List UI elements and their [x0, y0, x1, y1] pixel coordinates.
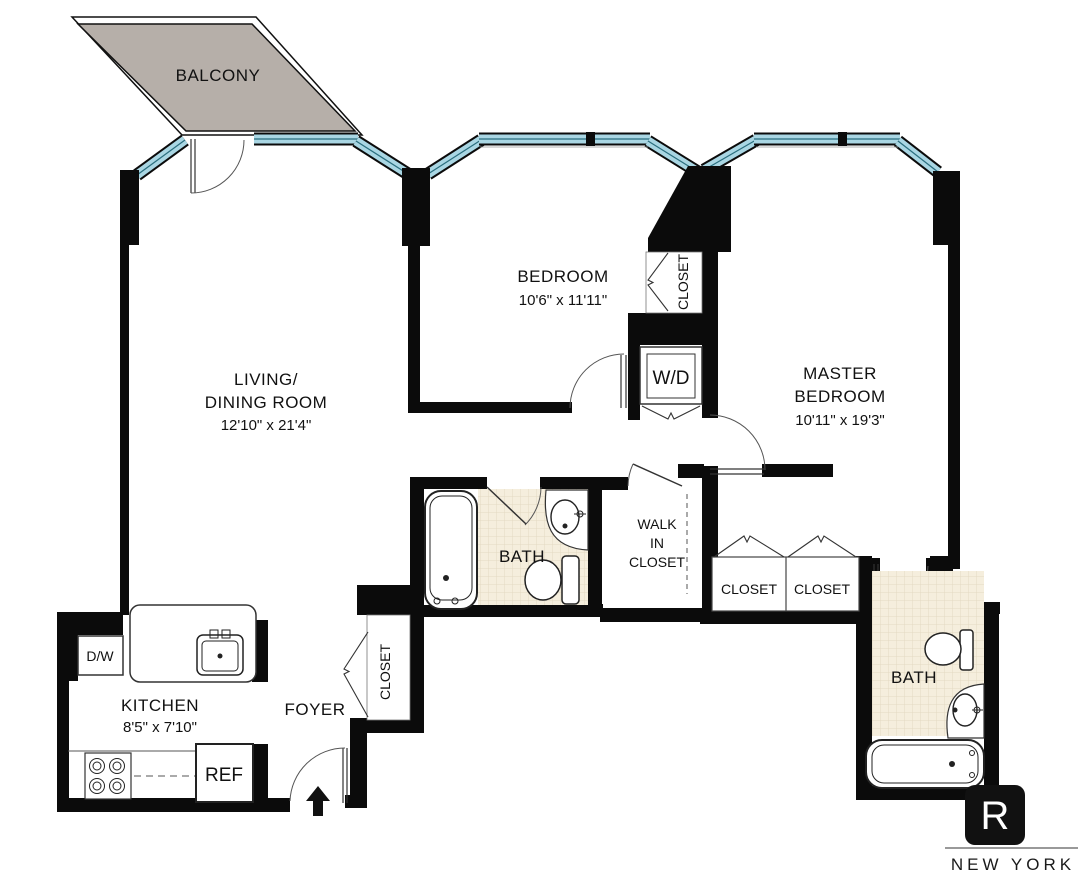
- master-name-line2: BEDROOM: [794, 387, 885, 406]
- master-closet-left-label: CLOSET: [721, 581, 777, 597]
- bedroom-name: BEDROOM: [517, 267, 608, 286]
- master-dimensions: 10'11" x 19'3": [795, 412, 885, 429]
- entry-arrow-icon: [306, 786, 330, 816]
- walk-in-line1: WALK: [637, 516, 677, 532]
- walk-in-closet: WALK IN CLOSET: [628, 464, 687, 594]
- foyer-closet: CLOSET: [344, 615, 410, 720]
- master-name-line1: MASTER: [803, 364, 877, 383]
- bathtub-icon: [425, 491, 477, 609]
- bathtub-icon: [866, 740, 984, 788]
- floor-plan-page: BALCONY: [0, 0, 1087, 880]
- living-dimensions: 12'10" x 21'4": [221, 417, 312, 434]
- kitchen-counter: [130, 605, 256, 682]
- kitchen-label: KITCHEN: [121, 696, 199, 715]
- walk-in-line3: CLOSET: [629, 554, 685, 570]
- refrigerator: REF: [196, 744, 253, 802]
- living-name-line2: DINING ROOM: [205, 393, 328, 412]
- kitchen-dimensions: 8'5" x 7'10": [123, 719, 197, 736]
- bedroom-dimensions: 10'6" x 11'11": [519, 292, 607, 309]
- window-strips: [137, 132, 938, 175]
- bedroom-closet: CLOSET: [646, 252, 702, 313]
- bedroom-closet-label: CLOSET: [675, 254, 691, 310]
- kitchen-sink-icon: [197, 630, 243, 675]
- foyer-label: FOYER: [284, 700, 345, 719]
- dishwasher-label: D/W: [86, 648, 114, 664]
- brand-wordmark: NEW YORK: [951, 855, 1075, 874]
- balcony-label: BALCONY: [176, 66, 261, 85]
- dishwasher: D/W: [78, 636, 123, 675]
- brand-logo-letter: R: [981, 794, 1010, 838]
- stove-icon: [85, 753, 131, 799]
- master-closets: CLOSET CLOSET: [712, 536, 859, 611]
- master-closet-right-label: CLOSET: [794, 581, 850, 597]
- washer-dryer: W/D: [640, 347, 702, 419]
- master-bath: BATH: [866, 571, 984, 788]
- walk-in-line2: IN: [650, 535, 664, 551]
- master-bath-label: BATH: [891, 668, 937, 687]
- living-name-line1: LIVING/: [234, 370, 298, 389]
- refrigerator-label: REF: [205, 765, 243, 786]
- hall-bath: BATH: [424, 487, 588, 609]
- hall-bath-label: BATH: [499, 547, 545, 566]
- foyer-closet-label: CLOSET: [377, 644, 393, 700]
- washer-dryer-label: W/D: [653, 368, 690, 389]
- balcony: BALCONY: [72, 17, 362, 135]
- floor-plan-drawing: BALCONY: [0, 0, 1087, 880]
